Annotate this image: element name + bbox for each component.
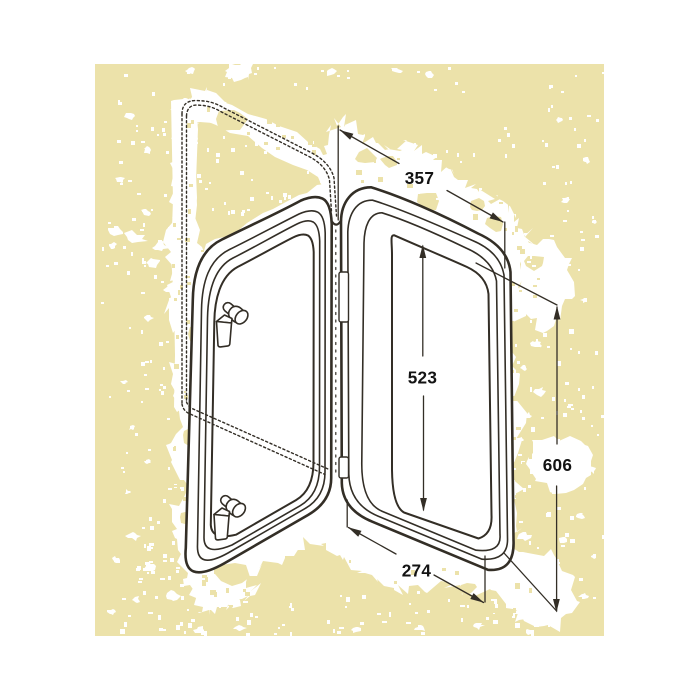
svg-text:606: 606	[543, 455, 573, 475]
svg-text:357: 357	[405, 168, 435, 188]
svg-text:523: 523	[408, 368, 438, 388]
svg-text:274: 274	[402, 561, 432, 581]
